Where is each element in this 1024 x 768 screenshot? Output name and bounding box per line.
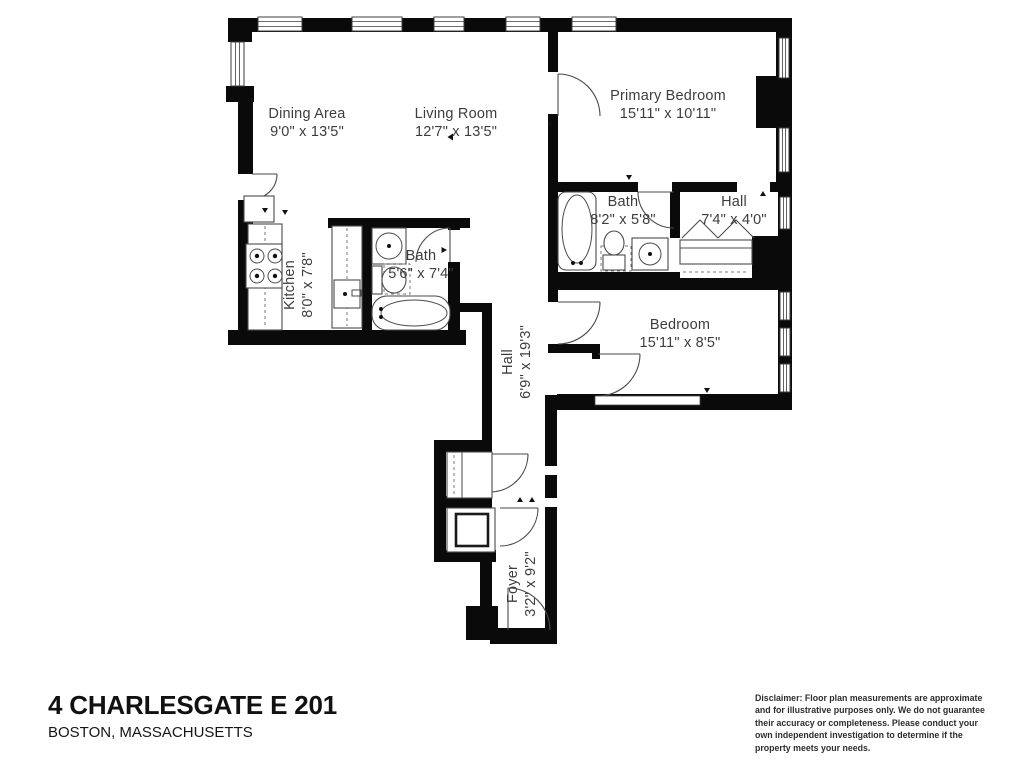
room-label-bedroom: Bedroom: [650, 317, 710, 333]
bathtub: [372, 296, 450, 330]
room-label-primary-bath: Bath: [608, 194, 639, 210]
room-dims-living-room: 12'7" x 13'5": [415, 124, 497, 140]
measure-arrow: [760, 191, 766, 196]
kitchen-sink: [334, 280, 361, 308]
room-dims-primary-bedroom: 15'11" x 10'11": [620, 106, 717, 122]
disclaimer-text: Disclaimer: Floor plan measurements are …: [755, 692, 990, 754]
room-dims-hall: 6'9" x 19'3": [518, 325, 534, 399]
door-arc: [252, 174, 277, 199]
measure-arrow: [282, 210, 288, 215]
room-dims-foyer: 3'2" x 9'2": [523, 551, 539, 617]
sink: [632, 238, 668, 270]
window: [780, 364, 790, 392]
room-label-living-room: Living Room: [415, 106, 498, 122]
room-dims-primary-bath: 8'2" x 5'8": [590, 212, 656, 228]
window: [231, 42, 244, 86]
door-arc: [558, 302, 600, 344]
door-arc: [490, 454, 528, 492]
bathtub: [558, 192, 596, 270]
window: [779, 38, 789, 78]
window: [572, 17, 616, 31]
door-arc: [558, 74, 600, 116]
window: [352, 17, 402, 31]
window: [434, 17, 464, 31]
door-arc: [500, 508, 538, 546]
measure-arrow: [626, 175, 632, 180]
window: [506, 17, 540, 31]
room-label-hall: Hall: [500, 349, 516, 375]
window: [780, 328, 790, 356]
room-dims-dining-area: 9'0" x 13'5": [270, 124, 344, 140]
floor-plan-page: Dining Area 9'0" x 13'5" Living Room 12'…: [0, 0, 1024, 768]
bedroom-builtin: [595, 396, 700, 405]
measure-arrow: [442, 247, 448, 253]
toilet: [603, 231, 625, 270]
kitchen-cabinet: [244, 196, 274, 222]
room-label-bath: Bath: [406, 248, 437, 264]
room-label-primary-bedroom: Primary Bedroom: [610, 88, 726, 104]
washer: [447, 508, 495, 552]
stove: [246, 244, 282, 288]
window: [779, 128, 789, 172]
sink: [372, 228, 406, 264]
property-title: 4 CHARLESGATE E 201: [48, 690, 337, 721]
title-block: 4 CHARLESGATE E 201 BOSTON, MASSACHUSETT…: [48, 690, 337, 741]
measure-arrow: [529, 497, 535, 502]
property-location: BOSTON, MASSACHUSETTS: [48, 724, 337, 741]
window: [780, 292, 790, 320]
door-arc: [598, 354, 640, 396]
room-dims-bedroom: 15'11" x 8'5": [639, 335, 720, 351]
room-label-dining-area: Dining Area: [268, 106, 346, 122]
measure-arrow: [517, 497, 523, 502]
room-dims-primary-hall: 7'4" x 4'0": [701, 212, 767, 228]
window: [780, 197, 790, 229]
room-label-foyer: Foyer: [505, 565, 521, 603]
room-label-primary-hall: Hall: [721, 194, 747, 210]
room-dims-kitchen: 8'0" x 7'8": [300, 252, 316, 318]
room-dims-bath: 5'6" x 7'4": [388, 266, 454, 282]
primary-hall-closet: [680, 240, 752, 272]
room-label-kitchen: Kitchen: [282, 260, 298, 310]
window: [258, 17, 302, 31]
measure-arrow: [704, 388, 710, 393]
room-labels: Dining Area 9'0" x 13'5" Living Room 12'…: [268, 88, 766, 617]
floor-plan-canvas: Dining Area 9'0" x 13'5" Living Room 12'…: [0, 0, 1024, 768]
shelf-closet: [447, 452, 492, 498]
